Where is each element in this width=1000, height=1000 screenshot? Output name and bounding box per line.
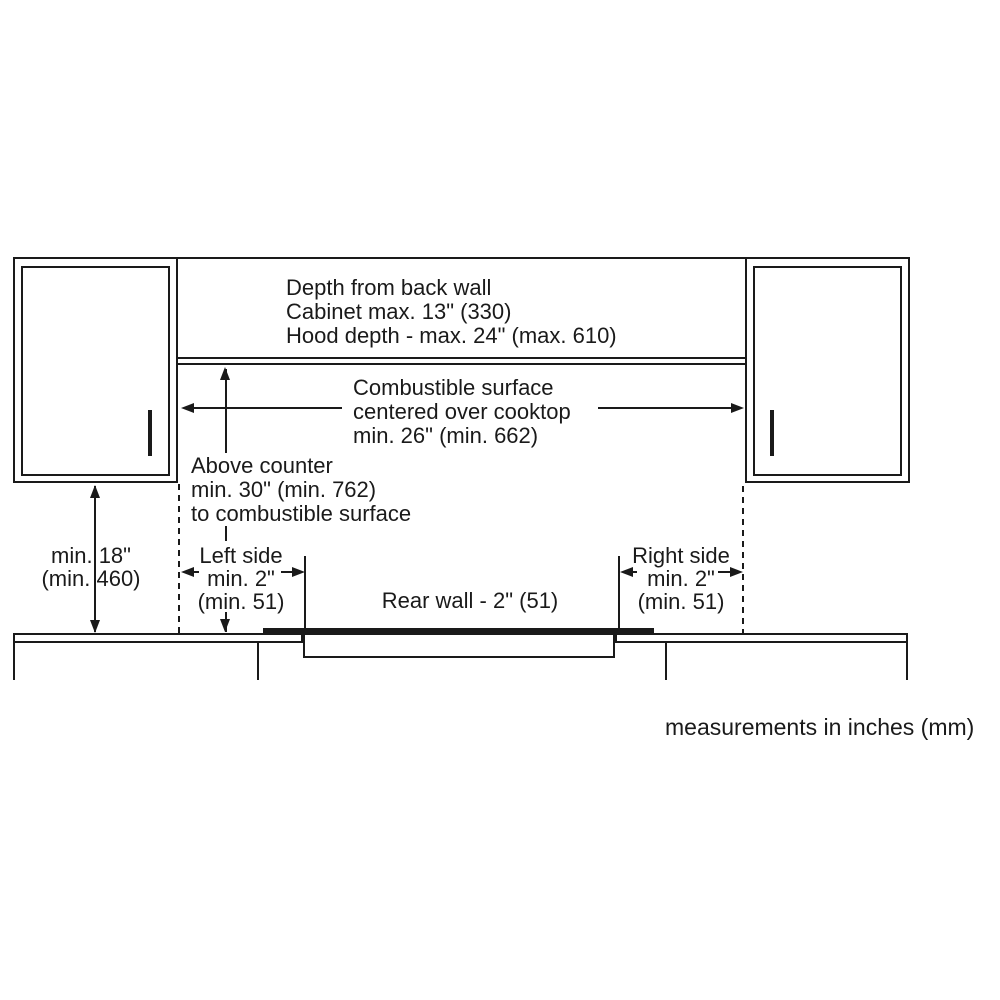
depth-note-line-3: Hood depth - max. 24" (max. 610) [286, 324, 617, 348]
base-left-wall-line [13, 643, 15, 680]
combustible-surface-label: Combustible surface centered over cookto… [353, 376, 571, 448]
combustible-arrow-left-icon [181, 403, 194, 413]
base-cabinet-right-line [665, 643, 667, 680]
units-note-label: measurements in inches (mm) [665, 714, 974, 740]
left-side-line-1: Left side [166, 544, 316, 567]
min18-label: min. 18" (min. 460) [16, 544, 166, 590]
above-counter-label: Above counter min. 30" (min. 762) to com… [191, 454, 411, 526]
left-side-line-3: (min. 51) [166, 590, 316, 613]
combustible-dimension-line-right [598, 407, 741, 409]
countertop-right [615, 633, 908, 643]
combustible-line-1: Combustible surface [353, 376, 571, 400]
depth-note-line-1: Depth from back wall [286, 276, 617, 300]
left-cabinet-handle [148, 410, 152, 456]
hood-bottom-line-inner [178, 363, 745, 365]
right-side-line-3: (min. 51) [606, 590, 756, 613]
above-counter-dimension-line-mid [225, 526, 227, 541]
right-side-line-2: min. 2" [606, 567, 756, 590]
min18-line-2: (min. 460) [16, 567, 166, 590]
combustible-dimension-line-left [186, 407, 342, 409]
depth-note-line-2: Cabinet max. 13" (330) [286, 300, 617, 324]
hood-bottom-line-outer [178, 357, 745, 359]
min18-line-1: min. 18" [16, 544, 166, 567]
combustible-line-2: centered over cooktop [353, 400, 571, 424]
above-counter-line-2: min. 30" (min. 762) [191, 478, 411, 502]
base-right-wall-line [906, 643, 908, 680]
above-counter-arrow-up-icon [220, 367, 230, 380]
right-upper-cabinet-door [753, 266, 902, 476]
min18-arrow-up-icon [90, 485, 100, 498]
cooktop-body-cutout [303, 633, 615, 658]
rear-wall-label: Rear wall - 2" (51) [345, 589, 595, 613]
right-side-label: Right side min. 2" (min. 51) [606, 544, 756, 613]
countertop-left [13, 633, 303, 643]
left-side-line-2: min. 2" [166, 567, 316, 590]
combustible-line-3: min. 26" (min. 662) [353, 424, 571, 448]
cooktop-surface [263, 628, 654, 634]
above-counter-line-3: to combustible surface [191, 502, 411, 526]
above-counter-line-1: Above counter [191, 454, 411, 478]
left-side-label: Left side min. 2" (min. 51) [166, 544, 316, 613]
depth-note-label: Depth from back wall Cabinet max. 13" (3… [286, 276, 617, 348]
above-counter-dimension-line-top [225, 369, 227, 453]
min18-arrow-down-icon [90, 620, 100, 633]
right-cabinet-handle [770, 410, 774, 456]
base-cabinet-left-line [257, 643, 259, 680]
above-counter-arrow-down-icon [220, 619, 230, 632]
installation-clearance-diagram: Depth from back wall Cabinet max. 13" (3… [0, 0, 1000, 1000]
combustible-arrow-right-icon [731, 403, 744, 413]
right-side-line-1: Right side [606, 544, 756, 567]
